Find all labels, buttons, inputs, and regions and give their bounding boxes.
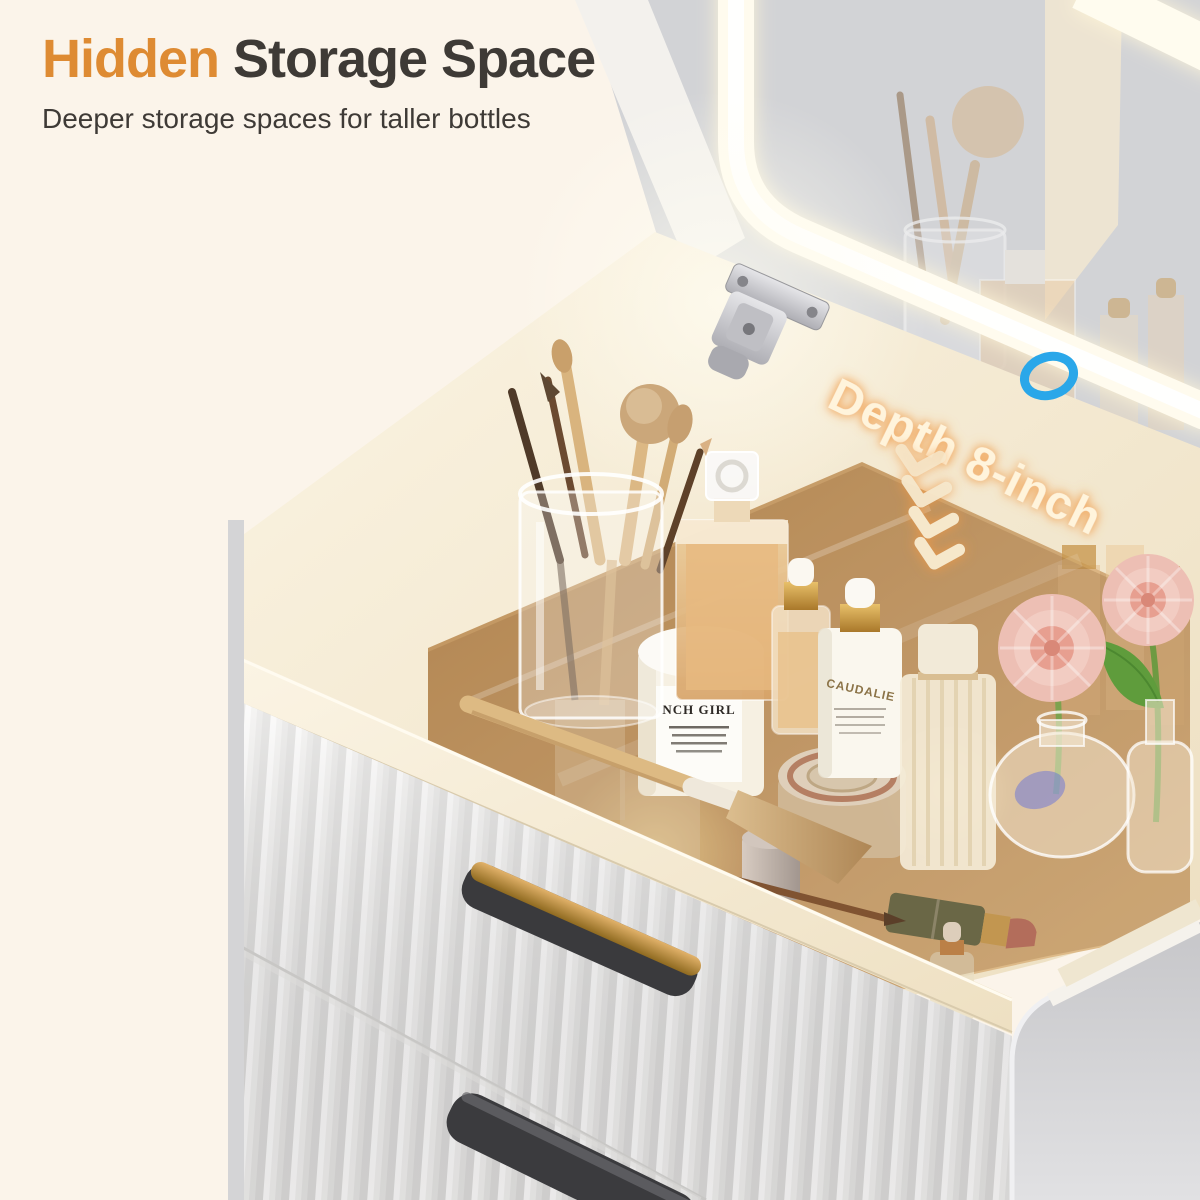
- jar-label: NCH GIRL: [662, 702, 735, 717]
- page-subtitle: Deeper storage spaces for taller bottles: [42, 103, 595, 135]
- title-rest: Storage Space: [219, 29, 595, 89]
- page-title: Hidden Storage Space: [42, 30, 595, 89]
- vanity-product-render: NCH GIRL: [0, 0, 1200, 1200]
- pink-dahlia-2: [1102, 554, 1194, 646]
- tall-bud-vase: [1128, 742, 1192, 872]
- pink-dahlia: [998, 594, 1106, 702]
- led-light-spill: [510, 90, 930, 510]
- cabinet-left-edge: [228, 520, 244, 1200]
- title-highlight: Hidden: [42, 29, 219, 89]
- header-text-block: Hidden Storage Space Deeper storage spac…: [42, 30, 595, 135]
- marketing-banner: Hidden Storage Space Deeper storage spac…: [0, 0, 1200, 1200]
